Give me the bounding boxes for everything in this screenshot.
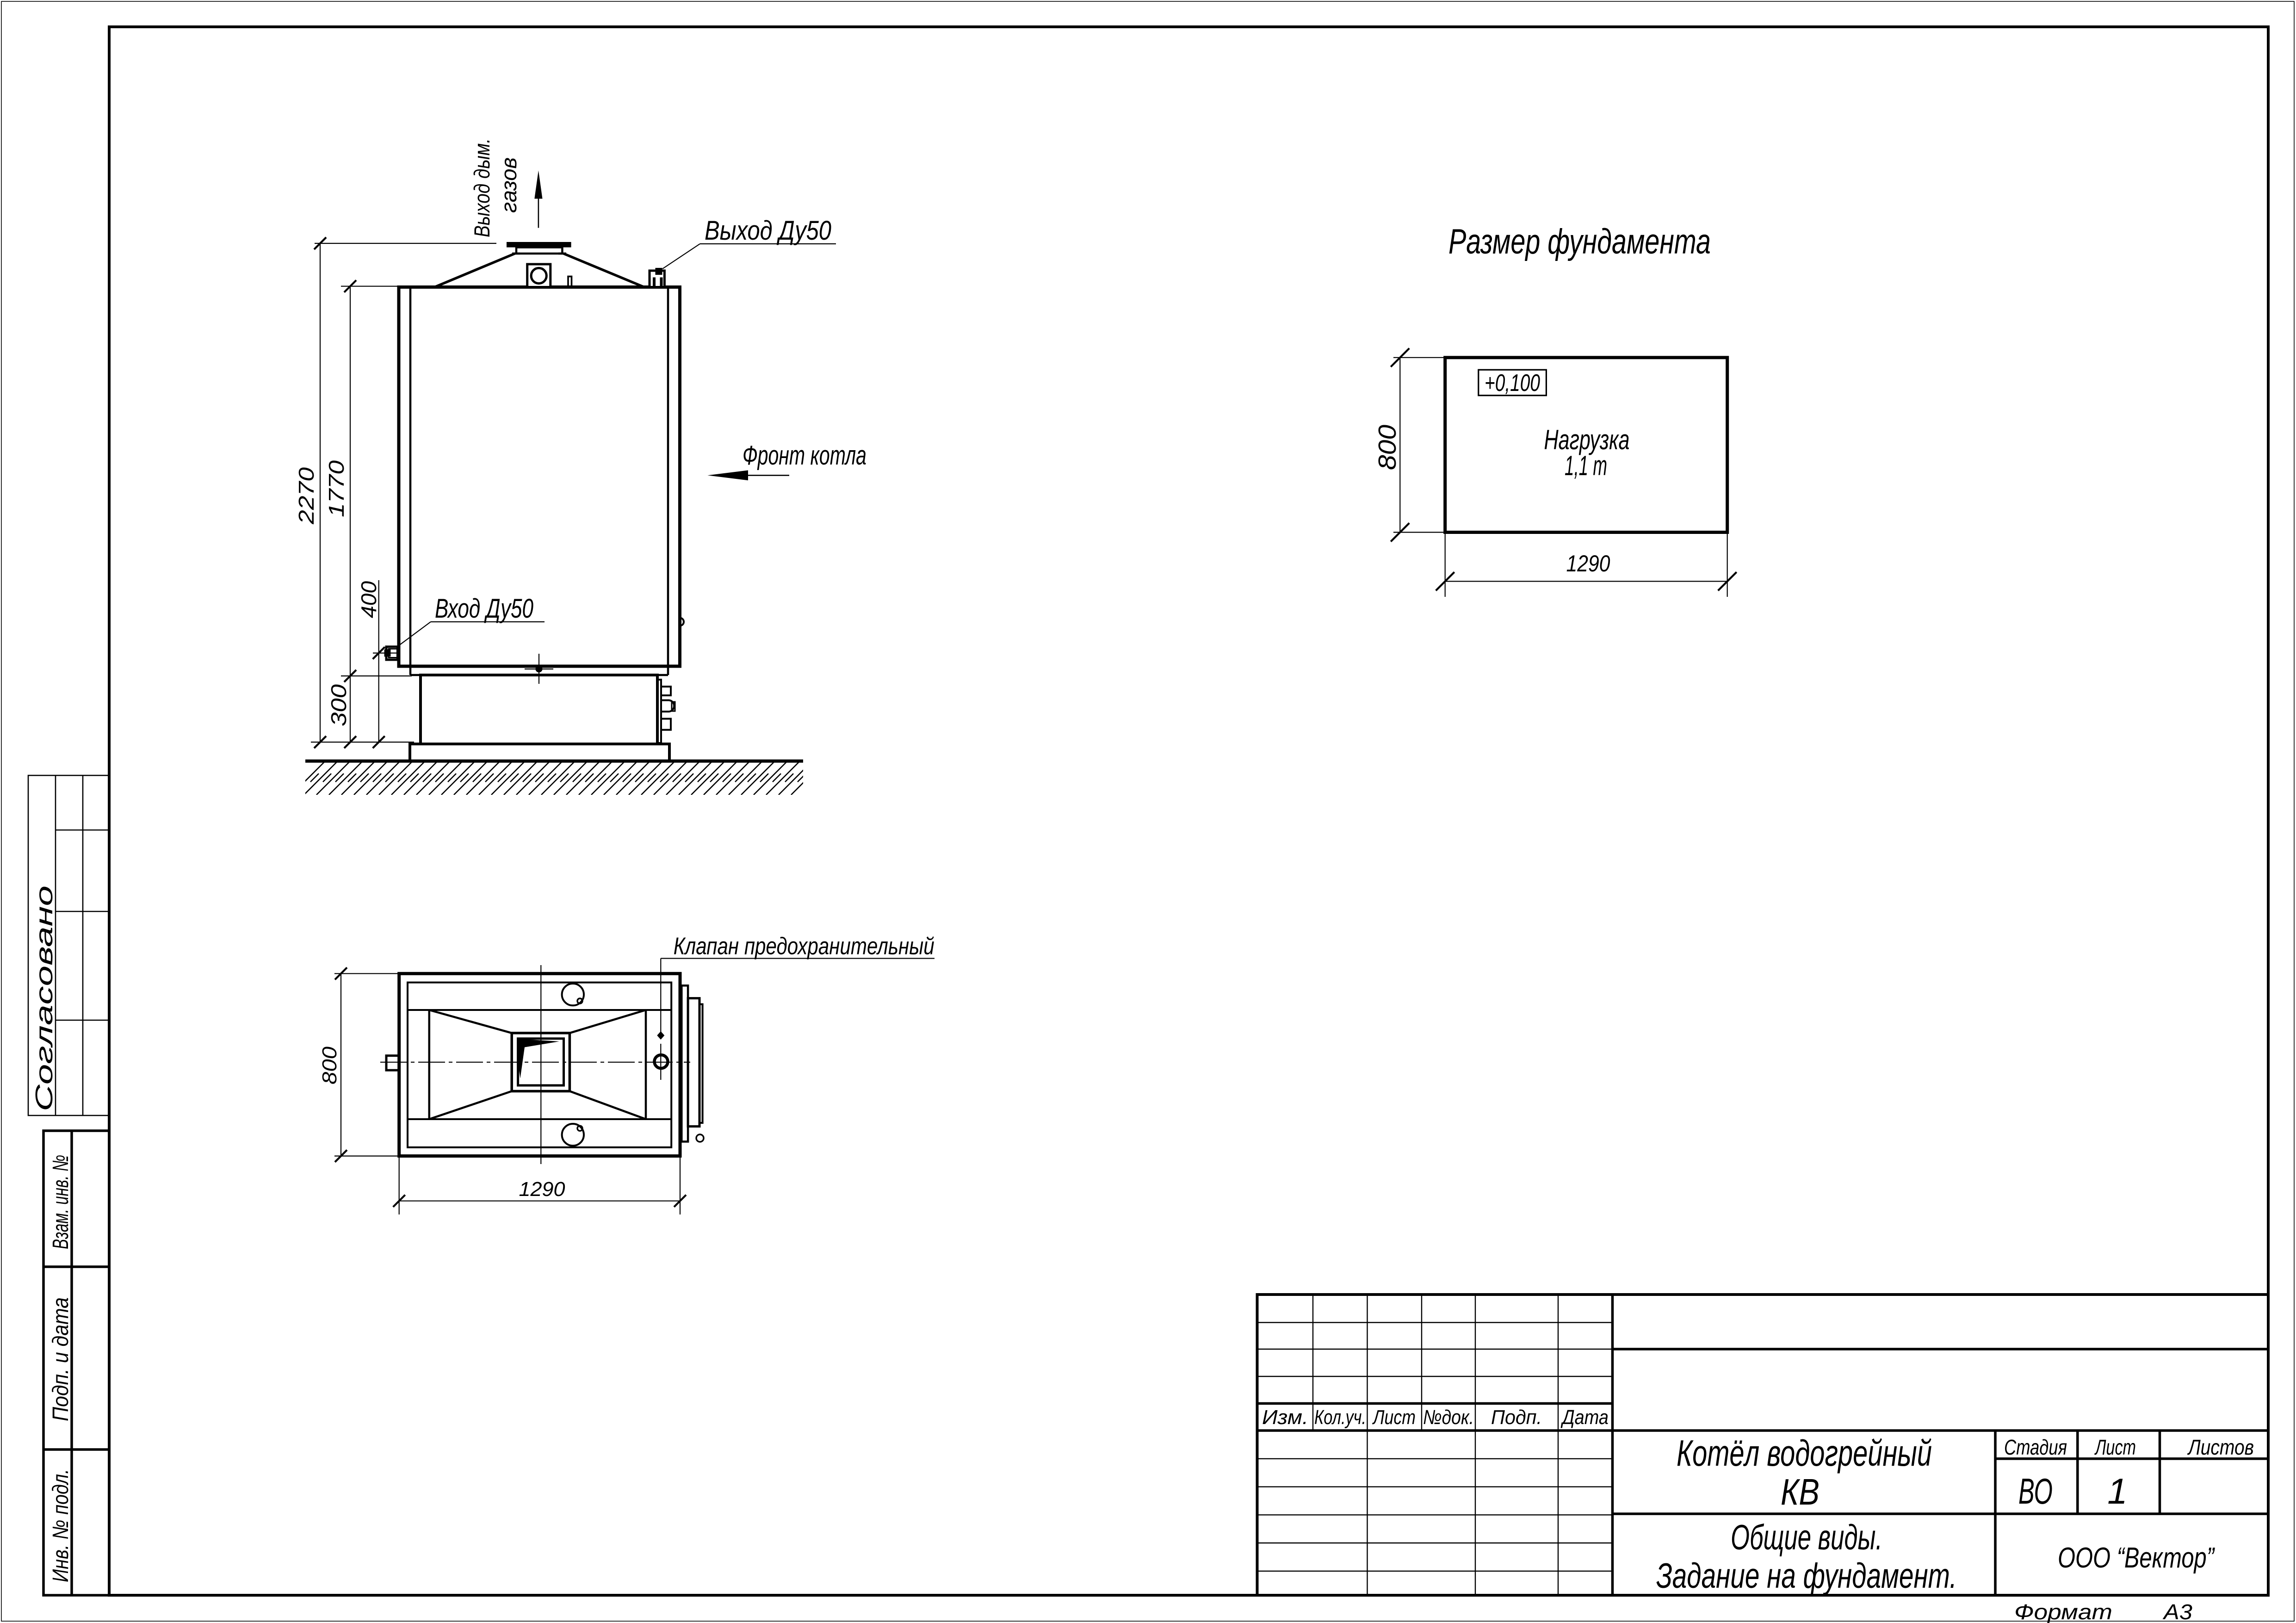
svg-text:Выход Ду50: Выход Ду50 xyxy=(705,216,831,246)
svg-text:Инв. № подл.: Инв. № подл. xyxy=(49,1469,73,1582)
svg-text:Кол.уч.: Кол.уч. xyxy=(1314,1406,1366,1429)
svg-text:1: 1 xyxy=(2107,1471,2127,1511)
svg-text:Вход Ду50: Вход Ду50 xyxy=(435,594,533,624)
svg-text:ВО: ВО xyxy=(2018,1471,2053,1511)
svg-text:Лист: Лист xyxy=(1372,1406,1416,1429)
svg-text:300: 300 xyxy=(327,684,351,726)
svg-text:Лист: Лист xyxy=(2094,1435,2136,1459)
svg-text:ООО “Вектор”: ООО “Вектор” xyxy=(2058,1542,2215,1574)
svg-text:1,1 т: 1,1 т xyxy=(1565,450,1607,481)
svg-text:Стадия: Стадия xyxy=(2004,1435,2067,1459)
svg-text:400: 400 xyxy=(357,581,381,618)
svg-text:Листов: Листов xyxy=(2187,1435,2254,1459)
svg-text:Задание на фундамент.: Задание на фундамент. xyxy=(1656,1556,1957,1596)
svg-text:800: 800 xyxy=(1374,425,1401,470)
svg-text:Подп.: Подп. xyxy=(1491,1406,1542,1429)
svg-text:А3: А3 xyxy=(2162,1600,2193,1623)
svg-text:Формат: Формат xyxy=(2014,1600,2112,1623)
svg-text:Изм.: Изм. xyxy=(1262,1406,1308,1429)
svg-text:Подп. и дата: Подп. и дата xyxy=(49,1297,73,1421)
svg-text:1290: 1290 xyxy=(519,1178,566,1201)
svg-text:Дата: Дата xyxy=(1560,1406,1609,1429)
svg-text:800: 800 xyxy=(318,1046,341,1084)
svg-text:+0,100: +0,100 xyxy=(1485,370,1540,396)
svg-text:КВ: КВ xyxy=(1781,1471,1819,1512)
svg-text:1770: 1770 xyxy=(324,460,348,517)
svg-text:Взам. инв. №: Взам. инв. № xyxy=(49,1155,73,1249)
svg-text:Размер фундамента: Размер фундамента xyxy=(1448,222,1711,261)
svg-text:Клапан предохранительный: Клапан предохранительный xyxy=(674,933,934,960)
svg-text:1290: 1290 xyxy=(1566,551,1610,576)
svg-text:2270: 2270 xyxy=(294,467,318,525)
svg-text:Выход дым.: Выход дым. xyxy=(470,138,494,237)
svg-text:Общие виды.: Общие виды. xyxy=(1731,1518,1882,1557)
svg-text:Котёл водогрейный: Котёл водогрейный xyxy=(1677,1432,1932,1474)
svg-text:Согласовано: Согласовано xyxy=(31,886,58,1111)
svg-text:газов: газов xyxy=(496,157,521,213)
svg-text:№док.: №док. xyxy=(1423,1406,1474,1429)
svg-text:Фронт котла: Фронт котла xyxy=(743,440,866,471)
